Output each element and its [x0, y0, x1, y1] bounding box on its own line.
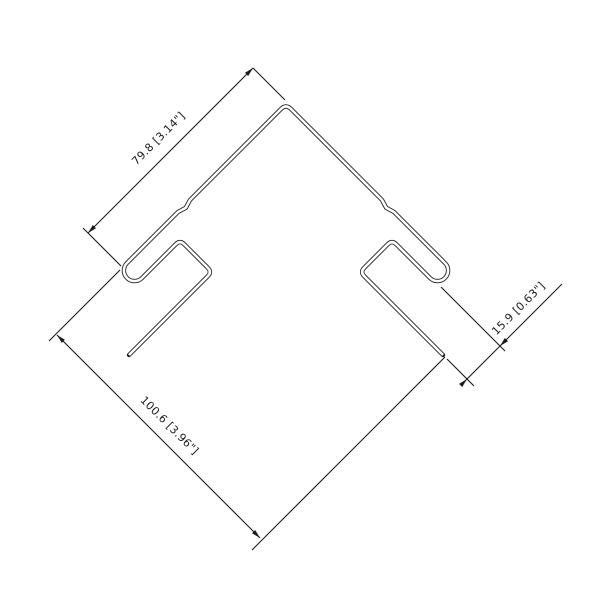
corner-profile-drawing-canvas: 79.8 [3.14"] 100.6 [3.96"] 15.9 [0.63"]	[0, 0, 600, 600]
dimension-line-pocket	[461, 284, 562, 385]
extension-line-right-leg-end	[447, 359, 474, 386]
dimension-overall: 100.6 [3.96"]	[49, 270, 445, 550]
dimension-label-pocket: 15.9 [0.63"]	[489, 279, 548, 338]
technical-drawing-page: 79.8 [3.14"] 100.6 [3.96"] 15.9 [0.63"]	[0, 0, 600, 600]
dimension-label-face: 79.8 [3.14"]	[129, 109, 188, 168]
extension-line-left-hem-lower	[49, 270, 120, 341]
extension-line-right-hem	[441, 287, 505, 351]
dimension-face: 79.8 [3.14"]	[83, 68, 285, 266]
extension-line-right-tip	[252, 357, 445, 550]
corner-profile-outline	[124, 107, 448, 356]
arrowhead	[459, 379, 467, 387]
dimension-line-face	[88, 68, 253, 233]
dimension-pocket: 15.9 [0.63"]	[441, 279, 562, 387]
dimension-line-overall	[57, 335, 260, 538]
corner-profile-core	[124, 107, 448, 356]
extension-line-left-hem	[83, 228, 121, 266]
corner-profile	[124, 107, 448, 356]
extension-line-apex	[253, 68, 285, 100]
